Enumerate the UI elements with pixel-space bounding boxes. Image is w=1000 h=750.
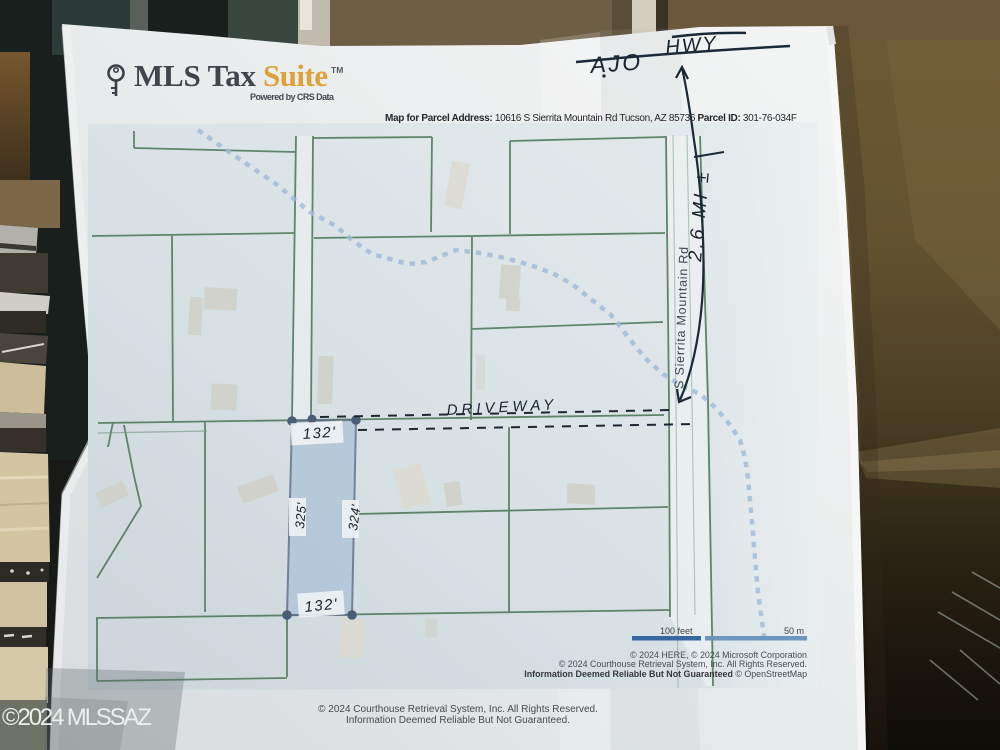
- svg-text:Information Deemed Reliable Bu: Information Deemed Reliable But Not Guar…: [346, 715, 570, 726]
- svg-text:MLS Tax: MLS Tax: [134, 58, 257, 93]
- svg-text:325': 325': [292, 502, 309, 529]
- svg-text:© 2024 Courthouse Retrieval Sy: © 2024 Courthouse Retrieval System, Inc.…: [318, 704, 598, 715]
- svg-text:100 feet: 100 feet: [660, 626, 693, 636]
- svg-text:50 m: 50 m: [784, 626, 804, 636]
- svg-text:132': 132': [302, 424, 337, 443]
- svg-text:TM: TM: [331, 65, 343, 75]
- svg-text:Powered by CRS Data: Powered by CRS Data: [250, 92, 335, 102]
- svg-text:Suite: Suite: [263, 58, 328, 93]
- svg-text:©2024 MLSSAZ: ©2024 MLSSAZ: [2, 704, 152, 731]
- svg-text:Information Deemed Reliable Bu: Information Deemed Reliable But Not Guar…: [524, 669, 807, 679]
- svg-text:Map for Parcel Address: 10616: Map for Parcel Address: 10616 S Sierrita…: [385, 113, 797, 124]
- svg-text:© 2024 Courthouse Retrieval Sy: © 2024 Courthouse Retrieval System, Inc.…: [559, 659, 807, 669]
- svg-text:132': 132': [304, 596, 339, 616]
- svg-text:AJO: AJO: [588, 48, 644, 78]
